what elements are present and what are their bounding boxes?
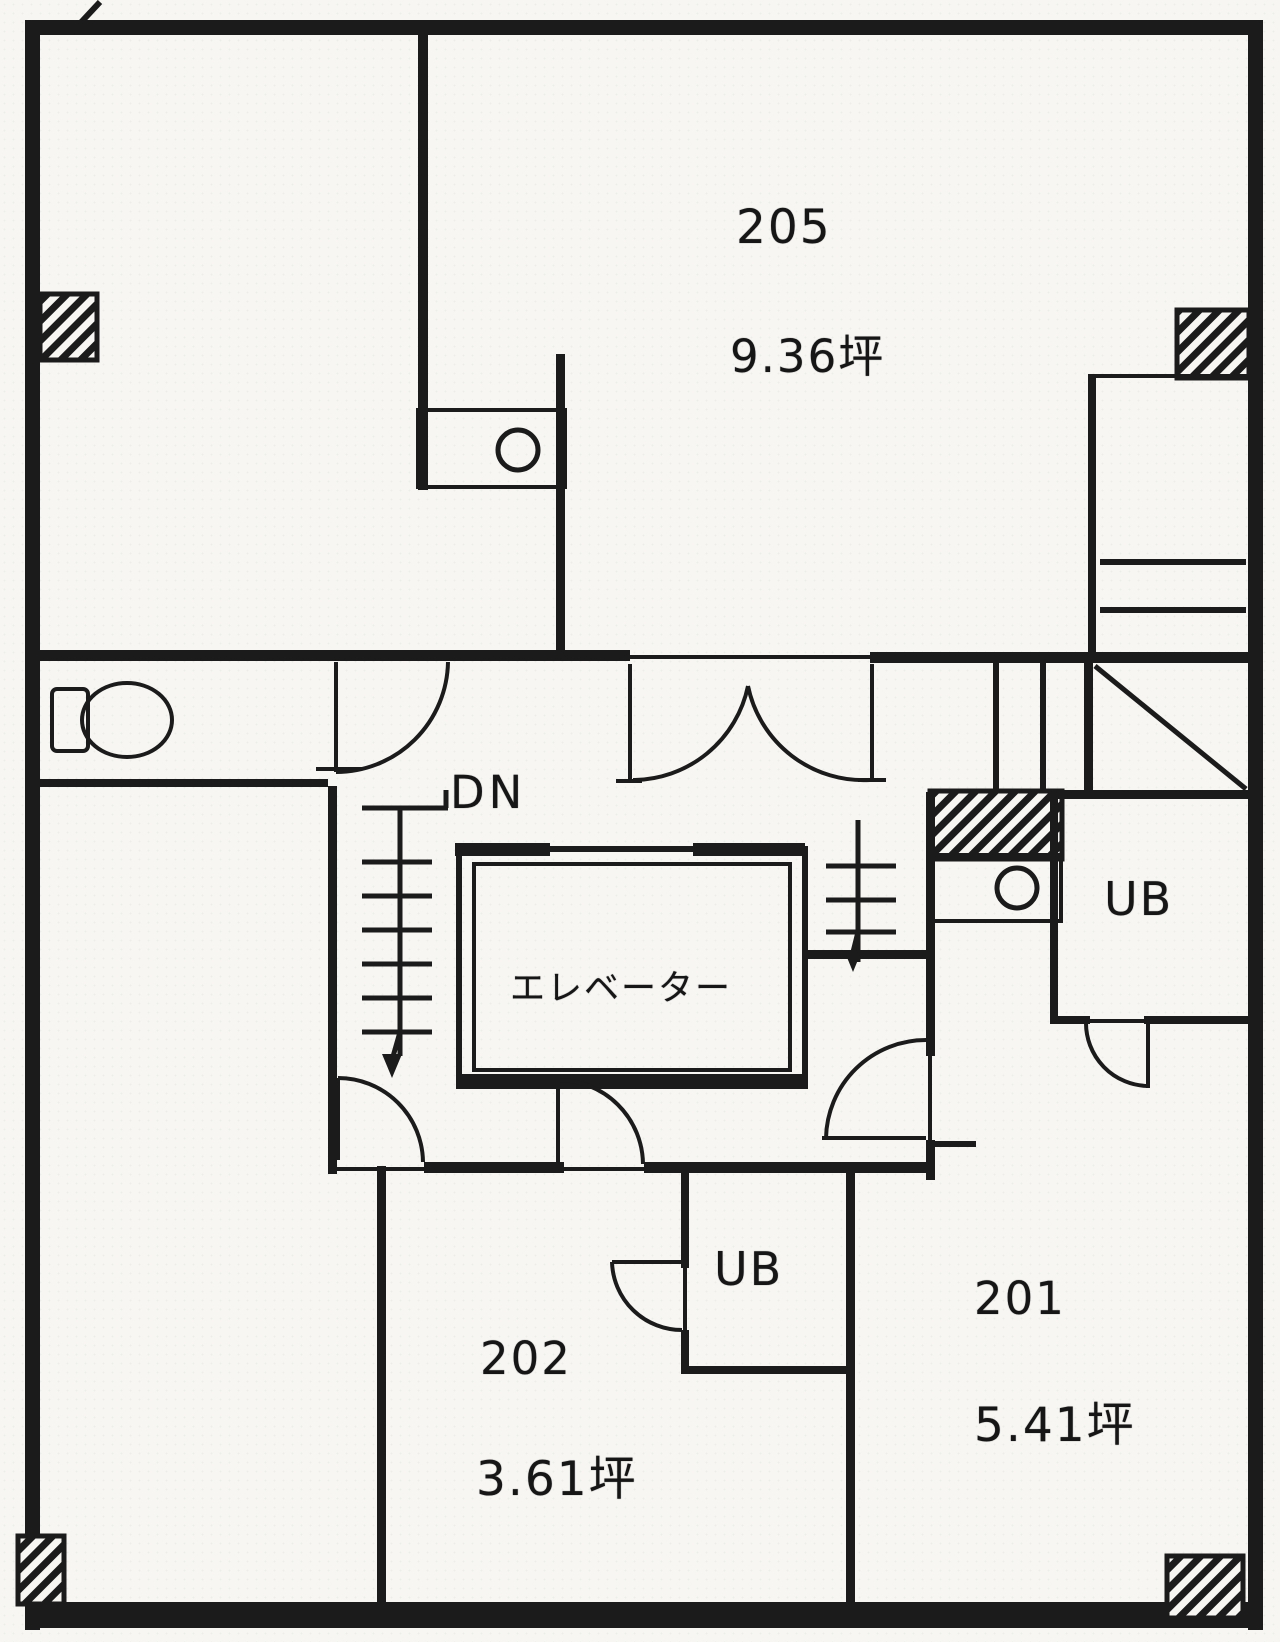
floor-plan-drawing [0, 0, 1280, 1642]
room-201-door [822, 1040, 926, 1138]
double-door-left-leaf [616, 664, 748, 781]
column-top-left [40, 294, 97, 360]
column-top-right [1177, 310, 1249, 378]
room-202-area-label: 3.61坪 [476, 1456, 638, 1503]
room-201-label: 201 [974, 1276, 1066, 1321]
room-205-area-label: 9.36坪 [730, 334, 885, 379]
door-202-threshold [562, 1167, 646, 1171]
column-core [930, 791, 1062, 859]
room-201-area-label: 5.41坪 [974, 1402, 1136, 1449]
unit-bath-lower-label: UB [714, 1246, 783, 1292]
floor-plan: 205 9.36坪 DN エレベーター UB UB 202 3.61坪 201 … [0, 0, 1280, 1642]
room-205-label: 205 [736, 204, 832, 251]
toilet-fixture [52, 683, 172, 757]
stairs-down-label: DN [450, 770, 526, 815]
ub-lower-door [612, 1262, 683, 1330]
stairs-lower-flight [362, 790, 448, 1078]
wash-basin-hall [932, 855, 1061, 921]
unit-bath-upper-label: UB [1104, 876, 1173, 922]
wash-basin-205 [418, 410, 565, 487]
column-bottom-right [1167, 1556, 1243, 1618]
door-201-threshold [928, 1056, 932, 1142]
hall-sw-door [338, 1078, 423, 1162]
room-202-door [558, 1080, 643, 1164]
elevator-shaft [455, 843, 805, 1086]
room-202-label: 202 [480, 1336, 572, 1381]
toilet-corridor-door [316, 662, 448, 772]
double-door-threshold [630, 655, 872, 659]
ub-upper-door [1086, 1022, 1148, 1088]
stairs-upper-flight [826, 820, 896, 972]
ub-lower-door-threshold [683, 1267, 687, 1331]
interior-walls [30, 34, 1256, 1608]
under-stair-diagonal [1095, 666, 1246, 789]
column-bottom-left [18, 1536, 64, 1604]
stairs-down-arrow [382, 1054, 402, 1078]
elevator-label: エレベーター [510, 972, 732, 1007]
double-door-right-leaf [748, 664, 886, 780]
ub-upper-door-threshold [1086, 1019, 1146, 1023]
closet-shelves [1100, 559, 1246, 613]
outer-walls [25, 2, 1263, 1630]
